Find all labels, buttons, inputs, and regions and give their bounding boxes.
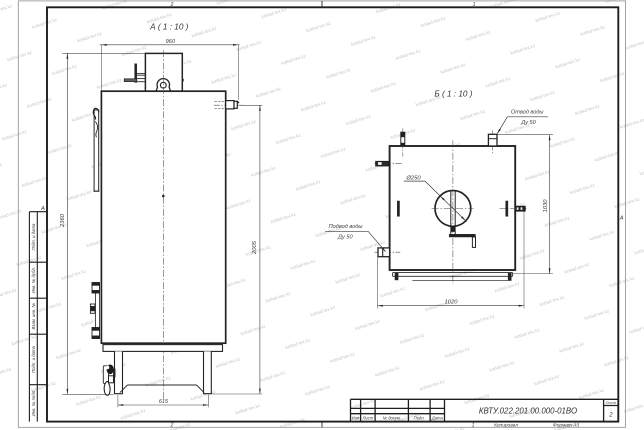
svg-text:Ду 50: Ду 50: [520, 120, 536, 126]
svg-text:kotlad-tex.kz: kotlad-tex.kz: [285, 337, 312, 350]
svg-text:kotlad-tex.kz: kotlad-tex.kz: [0, 366, 13, 379]
svg-text:kotlad-tex.kz: kotlad-tex.kz: [0, 208, 23, 221]
svg-text:kotlad-tex.kz: kotlad-tex.kz: [275, 132, 302, 145]
svg-text:kotlad-tex.kz: kotlad-tex.kz: [310, 304, 337, 317]
svg-text:kotlad-tex.kz: kotlad-tex.kz: [604, 355, 631, 368]
svg-text:kotlad-tex.kz: kotlad-tex.kz: [320, 146, 347, 159]
svg-text:2005: 2005: [252, 240, 258, 255]
svg-text:Инв. № подл.: Инв. № подл.: [31, 390, 36, 417]
svg-text:Копировал: Копировал: [494, 422, 518, 428]
svg-text:kotlad-tex.kz: kotlad-tex.kz: [544, 215, 571, 228]
svg-text:kotlad-tex.kz: kotlad-tex.kz: [306, 20, 333, 33]
svg-text:kotlad-tex.kz: kotlad-tex.kz: [305, 384, 332, 397]
svg-text:kotlad-tex.kz: kotlad-tex.kz: [145, 375, 172, 388]
svg-text:kotlad-tex.kz: kotlad-tex.kz: [0, 82, 8, 95]
svg-text:kotlad-tex.kz: kotlad-tex.kz: [609, 275, 636, 288]
svg-text:kotlad-tex.kz: kotlad-tex.kz: [121, 44, 148, 57]
svg-text:kotlad-tex.kz: kotlad-tex.kz: [494, 280, 521, 293]
svg-text:kotlad-tex.kz: kotlad-tex.kz: [469, 313, 496, 326]
svg-text:Дата: Дата: [431, 416, 444, 421]
svg-text:kotlad-tex.kz: kotlad-tex.kz: [256, 86, 283, 99]
svg-text:kotlad-tex.kz: kotlad-tex.kz: [629, 322, 644, 335]
svg-text:1030: 1030: [543, 199, 549, 213]
svg-text:kotlad-tex.kz: kotlad-tex.kz: [580, 24, 607, 37]
svg-text:kotlad-tex.kz: kotlad-tex.kz: [270, 211, 297, 224]
svg-text:kotlad-tex.kz: kotlad-tex.kz: [66, 189, 93, 202]
svg-text:kotlad-tex.kz: kotlad-tex.kz: [300, 100, 327, 113]
svg-text:kotlad-tex.kz: kotlad-tex.kz: [534, 373, 561, 386]
svg-text:kotlad-tex.kz: kotlad-tex.kz: [370, 81, 397, 94]
svg-text:Подвод воды: Подвод воды: [329, 224, 363, 230]
svg-text:kotlad-tex.kz: kotlad-tex.kz: [225, 198, 252, 211]
svg-text:kotlad-tex.kz: kotlad-tex.kz: [250, 165, 277, 178]
svg-text:№ докум.: № докум.: [383, 416, 401, 421]
svg-text:kotlad-tex.kz: kotlad-tex.kz: [0, 287, 18, 300]
svg-text:Б ( 1 : 10 ): Б ( 1 : 10 ): [434, 90, 472, 99]
svg-text:kotlad-tex.kz: kotlad-tex.kz: [261, 7, 288, 20]
svg-text:kotlad-tex.kz: kotlad-tex.kz: [594, 150, 621, 163]
svg-text:kotlad-tex.kz: kotlad-tex.kz: [236, 39, 263, 52]
svg-text:А: А: [40, 206, 45, 212]
svg-text:А: А: [619, 215, 624, 221]
svg-text:kotlad-tex.kz: kotlad-tex.kz: [331, 0, 358, 1]
svg-text:kotlad-tex.kz: kotlad-tex.kz: [440, 62, 467, 75]
svg-text:kotlad-tex.kz: kotlad-tex.kz: [549, 136, 576, 149]
svg-text:kotlad-tex.kz: kotlad-tex.kz: [374, 365, 401, 378]
svg-text:kotlad-tex.kz: kotlad-tex.kz: [61, 268, 88, 281]
svg-text:kotlad-tex.kz: kotlad-tex.kz: [295, 179, 322, 192]
svg-text:kotlad-tex.kz: kotlad-tex.kz: [579, 387, 606, 400]
svg-text:Лист: Лист: [605, 400, 617, 405]
svg-text:kotlad-tex.kz: kotlad-tex.kz: [265, 291, 292, 304]
svg-text:kotlad-tex.kz: kotlad-tex.kz: [639, 163, 644, 176]
svg-text:kotlad-tex.kz: kotlad-tex.kz: [21, 175, 48, 188]
svg-text:kotlad-tex.kz: kotlad-tex.kz: [0, 3, 14, 16]
svg-text:2: 2: [608, 413, 613, 419]
svg-text:kotlad-tex.kz: kotlad-tex.kz: [7, 49, 34, 62]
svg-text:А ( 1 : 10 ): А ( 1 : 10 ): [149, 22, 188, 31]
svg-text:kotlad-tex.kz: kotlad-tex.kz: [395, 48, 422, 61]
svg-text:kotlad-tex.kz: kotlad-tex.kz: [530, 89, 557, 102]
svg-text:kotlad-tex.kz: kotlad-tex.kz: [211, 72, 238, 85]
svg-text:kotlad-tex.kz: kotlad-tex.kz: [555, 57, 582, 70]
svg-text:kotlad-tex.kz: kotlad-tex.kz: [623, 401, 644, 414]
svg-text:kotlad-tex.kz: kotlad-tex.kz: [564, 262, 591, 275]
svg-text:Лист: Лист: [361, 416, 373, 421]
svg-text:kotlad-tex.kz: kotlad-tex.kz: [32, 17, 59, 30]
svg-text:kotlad-tex.kz: kotlad-tex.kz: [569, 182, 596, 195]
svg-text:kotlad-tex.kz: kotlad-tex.kz: [235, 403, 262, 416]
svg-text:Подп. и дата: Подп. и дата: [31, 345, 36, 373]
svg-text:kotlad-tex.kz: kotlad-tex.kz: [75, 394, 102, 407]
svg-text:kotlad-tex.kz: kotlad-tex.kz: [535, 10, 562, 23]
svg-text:kotlad-tex.kz: kotlad-tex.kz: [281, 53, 308, 66]
svg-text:2360: 2360: [60, 213, 66, 228]
svg-text:kotlad-tex.kz: kotlad-tex.kz: [350, 34, 377, 47]
svg-text:Подп.: Подп.: [414, 416, 425, 421]
svg-text:kotlad-tex.kz: kotlad-tex.kz: [120, 408, 147, 421]
svg-text:Подп. и дата: Подп. и дата: [31, 223, 36, 251]
svg-text:kotlad-tex.kz: kotlad-tex.kz: [574, 103, 601, 116]
svg-text:kotlad-tex.kz: kotlad-tex.kz: [46, 142, 73, 155]
svg-text:1: 1: [473, 2, 476, 8]
svg-text:1: 1: [472, 422, 475, 428]
svg-text:kotlad-tex.kz: kotlad-tex.kz: [325, 67, 352, 80]
svg-text:Взам. инв. №: Взам. инв. №: [31, 303, 36, 330]
svg-text:kotlad-tex.kz: kotlad-tex.kz: [260, 370, 287, 383]
svg-text:kotlad-tex.kz: kotlad-tex.kz: [330, 351, 357, 364]
svg-text:kotlad-tex.kz: kotlad-tex.kz: [26, 96, 53, 109]
svg-text:kotlad-tex.kz: kotlad-tex.kz: [165, 421, 192, 430]
svg-text:kotlad-tex.kz: kotlad-tex.kz: [619, 117, 644, 130]
svg-text:kotlad-tex.kz: kotlad-tex.kz: [101, 0, 128, 11]
svg-text:kotlad-tex.kz: kotlad-tex.kz: [539, 294, 566, 307]
svg-text:kotlad-tex.kz: kotlad-tex.kz: [340, 193, 367, 206]
svg-text:Отвод воды: Отвод воды: [511, 110, 544, 116]
svg-text:kotlad-tex.kz: kotlad-tex.kz: [245, 244, 272, 257]
svg-text:kotlad-tex.kz: kotlad-tex.kz: [460, 108, 487, 121]
svg-text:kotlad-tex.kz: kotlad-tex.kz: [489, 360, 516, 373]
svg-text:kotlad-tex.kz: kotlad-tex.kz: [559, 341, 586, 354]
svg-text:kotlad-tex.kz: kotlad-tex.kz: [589, 229, 616, 242]
svg-text:kotlad-tex.kz: kotlad-tex.kz: [1, 129, 28, 142]
svg-text:kotlad-tex.kz: kotlad-tex.kz: [36, 301, 63, 314]
svg-text:Инв. № дубл.: Инв. № дубл.: [31, 267, 36, 293]
svg-text:kotlad-tex.kz: kotlad-tex.kz: [524, 169, 551, 182]
svg-text:kotlad-tex.kz: kotlad-tex.kz: [519, 248, 546, 261]
svg-text:kotlad-tex.kz: kotlad-tex.kz: [465, 29, 492, 42]
svg-text:kotlad-tex.kz: kotlad-tex.kz: [51, 63, 78, 76]
svg-text:kotlad-tex.kz: kotlad-tex.kz: [335, 272, 362, 285]
svg-text:Изм: Изм: [352, 416, 360, 421]
svg-text:kotlad-tex.kz: kotlad-tex.kz: [380, 286, 407, 299]
svg-text:615: 615: [159, 399, 169, 405]
svg-text:kotlad-tex.kz: kotlad-tex.kz: [290, 258, 317, 271]
svg-text:КВТУ.022.201.00.000-01ВО: КВТУ.022.201.00.000-01ВО: [479, 406, 577, 415]
svg-text:kotlad-tex.kz: kotlad-tex.kz: [0, 161, 3, 174]
svg-text:kotlad-tex.kz: kotlad-tex.kz: [444, 346, 471, 359]
svg-text:kotlad-tex.kz: kotlad-tex.kz: [76, 31, 103, 44]
svg-text:kotlad-tex.kz: kotlad-tex.kz: [420, 15, 447, 28]
svg-text:kotlad-tex.kz: kotlad-tex.kz: [514, 327, 541, 340]
svg-text:kotlad-tex.kz: kotlad-tex.kz: [215, 356, 242, 369]
svg-text:kotlad-tex.kz: kotlad-tex.kz: [56, 347, 83, 360]
svg-text:kotlad-tex.kz: kotlad-tex.kz: [240, 323, 267, 336]
svg-text:kotlad-tex.kz: kotlad-tex.kz: [419, 379, 446, 392]
svg-text:960: 960: [165, 39, 175, 45]
svg-text:kotlad-tex.kz: kotlad-tex.kz: [584, 308, 611, 321]
svg-text:2: 2: [170, 2, 174, 8]
svg-text:kotlad-tex.kz: kotlad-tex.kz: [599, 70, 626, 83]
svg-text:Ду 50: Ду 50: [337, 235, 353, 241]
svg-text:kotlad-tex.kz: kotlad-tex.kz: [96, 77, 123, 90]
svg-text:1020: 1020: [445, 299, 459, 305]
svg-text:kotlad-tex.kz: kotlad-tex.kz: [355, 318, 382, 331]
svg-text:kotlad-tex.kz: kotlad-tex.kz: [510, 43, 537, 56]
svg-text:2: 2: [170, 422, 174, 428]
svg-text:Формат А3: Формат А3: [553, 422, 580, 428]
svg-text:kotlad-tex.kz: kotlad-tex.kz: [634, 243, 644, 256]
svg-text:kotlad-tex.kz: kotlad-tex.kz: [485, 76, 512, 89]
svg-text:kotlad-tex.kz: kotlad-tex.kz: [231, 118, 258, 131]
svg-text:kotlad-tex.kz: kotlad-tex.kz: [11, 334, 38, 347]
svg-text:kotlad-tex.kz: kotlad-tex.kz: [191, 25, 218, 38]
svg-text:kotlad-tex.kz: kotlad-tex.kz: [624, 38, 644, 51]
svg-text:kotlad-tex.kz: kotlad-tex.kz: [399, 332, 426, 345]
svg-text:kotlad-tex.kz: kotlad-tex.kz: [345, 113, 372, 126]
